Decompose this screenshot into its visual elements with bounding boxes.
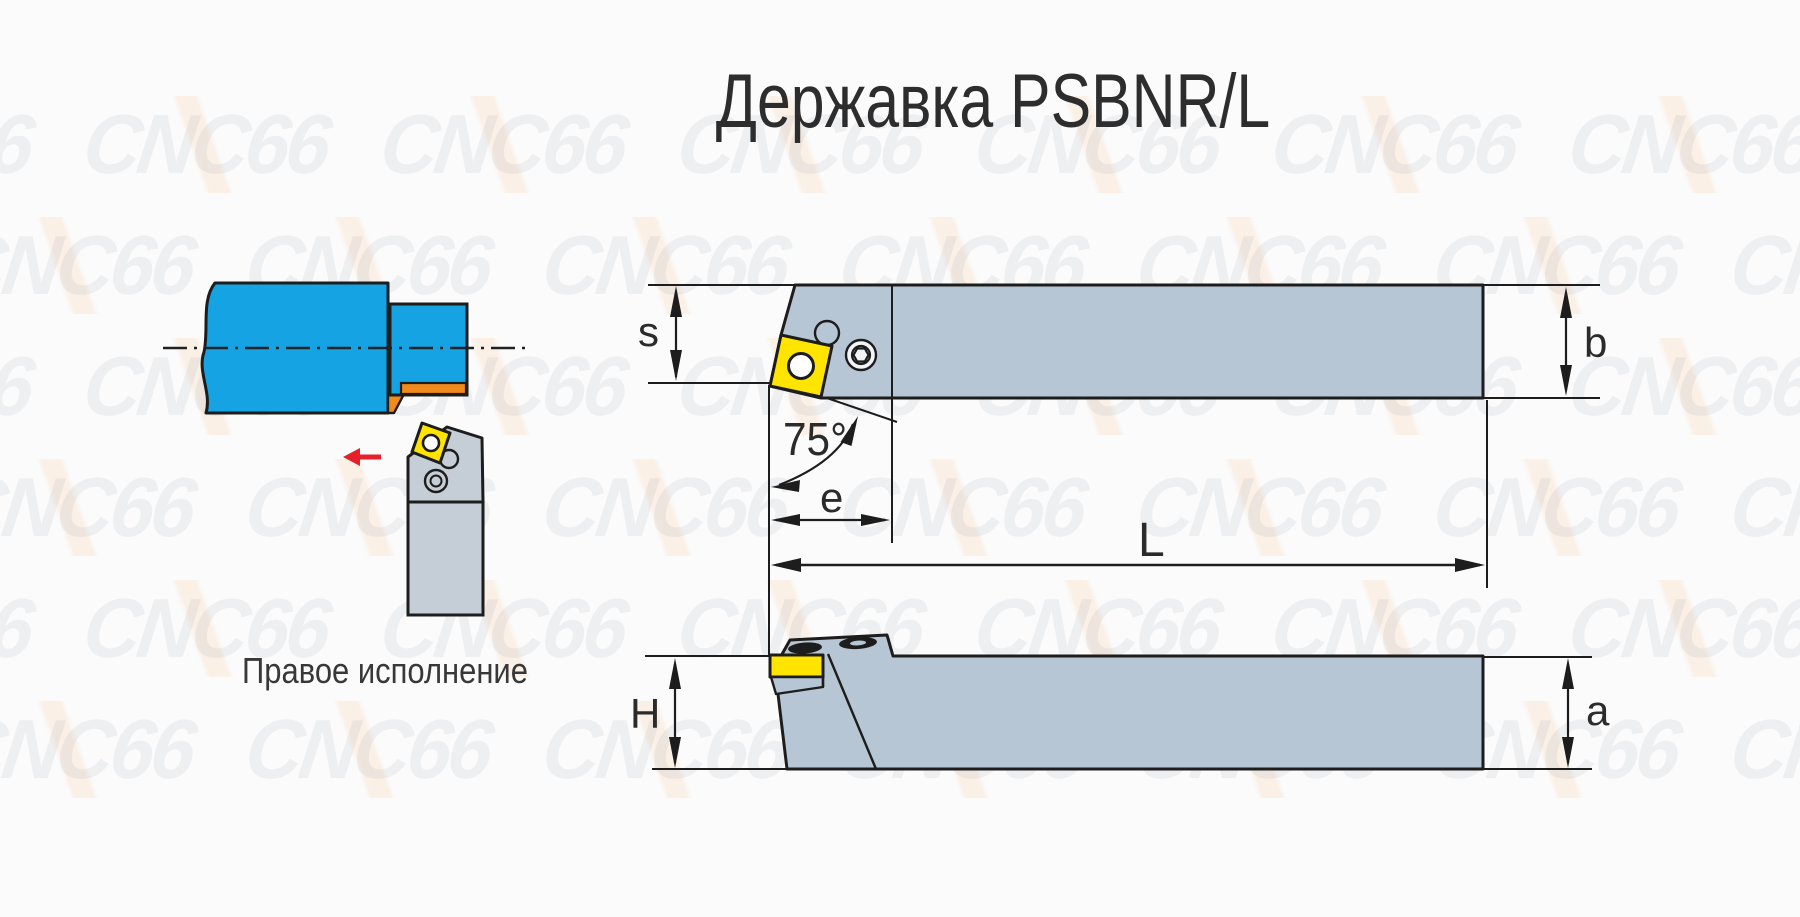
dim-e-label: e — [820, 474, 843, 521]
top-view: s b 75° e — [638, 285, 1607, 657]
dim-H: H — [630, 658, 681, 768]
top-view-body — [770, 285, 1483, 398]
dim-angle: 75° — [771, 413, 858, 492]
dim-a-label: a — [1586, 687, 1610, 734]
side-view-body — [773, 635, 1483, 769]
dim-b: b — [1560, 287, 1607, 396]
angle-label: 75° — [783, 413, 847, 465]
dim-b-label: b — [1584, 319, 1607, 366]
dim-a: a — [1562, 658, 1610, 768]
clamp-screw-top — [846, 340, 876, 370]
insert-side-view — [770, 655, 823, 677]
dim-L: L — [771, 514, 1485, 572]
workpiece-machined-strip — [401, 383, 466, 394]
technical-drawing: s b 75° e — [0, 0, 1800, 917]
side-view: H a — [630, 635, 1610, 769]
clamp-pin-top — [815, 321, 839, 345]
feed-arrow — [343, 448, 381, 466]
insert-hole-top — [789, 354, 814, 379]
dim-s: s — [638, 286, 682, 381]
diagram-page: CNC66CNC66CNC66CNC66CNC66CNC66CNC66CNC66… — [0, 0, 1800, 917]
insert-hole — [423, 435, 439, 451]
turning-illustration — [163, 283, 530, 615]
dim-H-label: H — [630, 690, 660, 737]
dim-s-label: s — [638, 308, 659, 355]
workpiece-small-cylinder — [390, 304, 467, 395]
holder-pictorial — [408, 423, 483, 615]
clamp-screw-outer — [425, 470, 447, 492]
dim-L-label: L — [1138, 514, 1165, 567]
holder-shank — [408, 502, 483, 615]
